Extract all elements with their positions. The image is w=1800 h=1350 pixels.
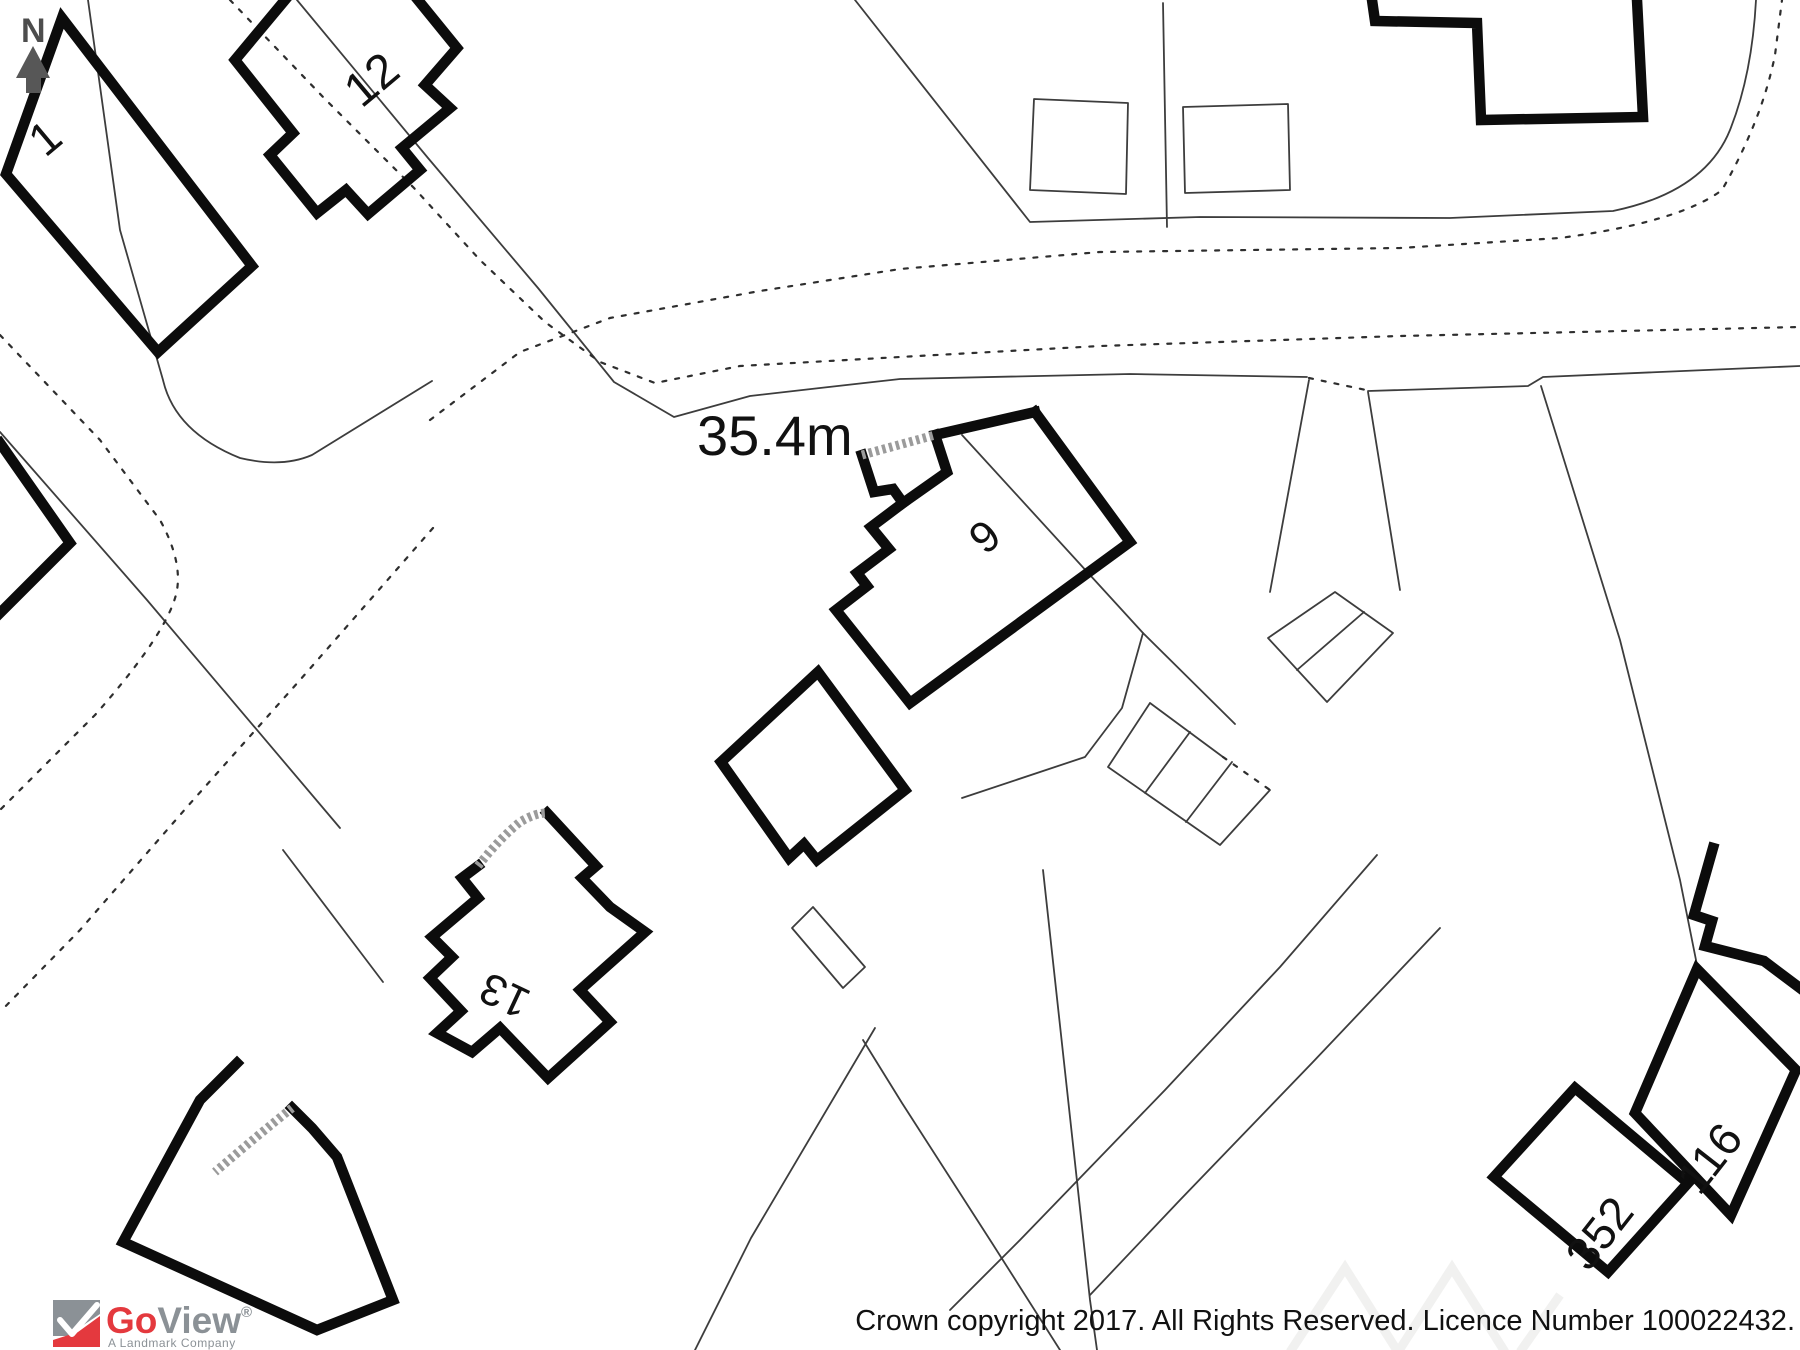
building-6-hatched-wall [862,435,935,455]
house-number-12: 12 [335,43,410,118]
house-number-6: 6 [959,509,1009,562]
shed-outline [792,907,865,988]
north-label: N [21,12,46,50]
building-13-hatched-wall [478,813,547,866]
building-right-fragment [1694,848,1800,988]
building-top-right [1372,0,1643,120]
site-boundary-red [430,417,1043,1023]
logo-tagline: A Landmark Company [108,1336,236,1350]
parcel-lines [0,0,1800,1350]
building-left-fragment [0,443,70,613]
building-6 [836,412,1130,703]
shed-outline [1183,104,1290,193]
building-central-house [721,672,905,860]
site-plan-map: 35.4m 1 12 6 13 352 116 N GoView® A Land… [0,0,1800,1350]
garage-block [1268,592,1393,702]
copyright-notice: Crown copyright 2017. All Rights Reserve… [855,1305,1795,1337]
goview-logo: GoView® A Landmark Company [53,1300,252,1350]
buildings [0,0,1800,1330]
logo-registered-mark: ® [241,1304,252,1321]
house-number-352: 352 [1555,1187,1643,1279]
measurement-label: 35.4m [697,404,853,467]
svg-text:GoView®: GoView® [106,1300,252,1341]
building-12 [235,0,457,214]
building-bottom-left [123,1063,393,1330]
building-bottom-left-hatched-wall [215,1108,292,1172]
site-plan-page: 35.4m 1 12 6 13 352 116 N GoView® A Land… [0,0,1800,1350]
building-6-annex [903,412,1035,503]
benchmark-cross [647,330,683,366]
logo-text-go: Go [106,1300,157,1341]
shed-outline [1030,99,1128,194]
logo-text-view: View [157,1300,241,1341]
house-number-13: 13 [472,963,537,1028]
building-13 [430,813,645,1078]
